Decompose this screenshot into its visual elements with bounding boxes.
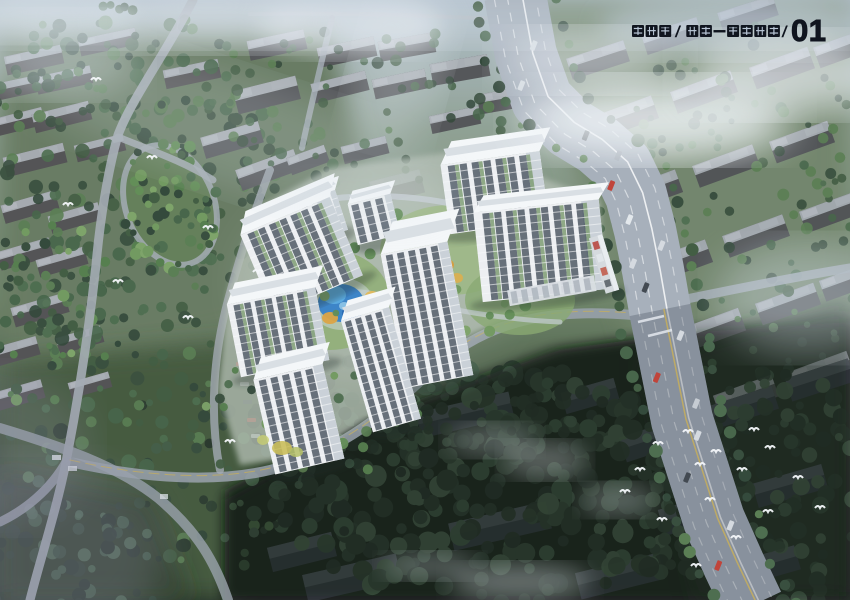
svg-text:01: 01 [791, 13, 826, 48]
